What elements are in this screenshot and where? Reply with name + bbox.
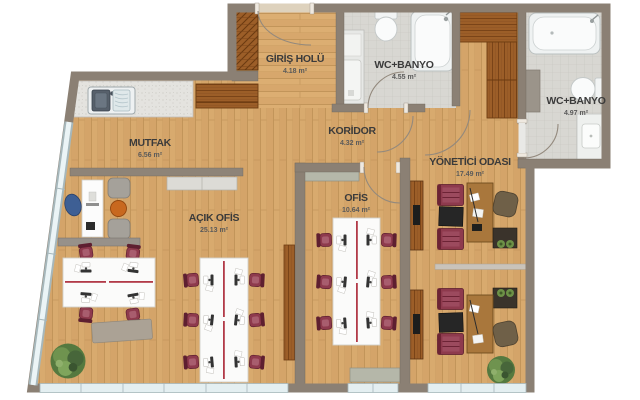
coffee-table <box>439 207 464 227</box>
bathtub <box>529 13 600 54</box>
floor-plan-drawing: MUTFAK 6.56 m² GİRİŞ HOLÜ 4.18 m² WC+BAN… <box>0 0 640 400</box>
svg-text:4.18 m²: 4.18 m² <box>283 68 308 75</box>
svg-text:GİRİŞ HOLÜ: GİRİŞ HOLÜ <box>266 52 324 65</box>
svg-text:17.49 m²: 17.49 m² <box>456 171 485 178</box>
desk-cluster-b <box>183 258 265 382</box>
ofis-cabinet-bottom <box>350 368 400 382</box>
coffee-table <box>439 313 464 333</box>
plant-stand <box>493 288 517 308</box>
armchair <box>438 229 464 250</box>
room-label-ofis: OFİS 10.64 m² <box>342 191 371 214</box>
entrance-opening <box>258 4 311 13</box>
svg-text:WC+BANYO: WC+BANYO <box>546 95 605 107</box>
ofis-door-opening <box>364 164 396 171</box>
svg-text:YÖNETİCİ ODASI: YÖNETİCİ ODASI <box>429 155 511 168</box>
armchair <box>438 289 464 310</box>
manager-desk <box>467 183 493 242</box>
glass-partition <box>435 264 530 270</box>
floor-plan-canvas: MUTFAK 6.56 m² GİRİŞ HOLÜ 4.18 m² WC+BAN… <box>0 0 640 400</box>
svg-text:OFİS: OFİS <box>344 191 368 204</box>
svg-text:AÇIK OFİS: AÇIK OFİS <box>189 211 240 224</box>
guest-chair <box>108 178 130 198</box>
armchair <box>438 334 464 355</box>
vanity-cabinet <box>524 70 540 112</box>
manager-desk <box>467 295 493 353</box>
svg-text:KORİDOR: KORİDOR <box>328 124 376 137</box>
entry-tall-cabinet <box>236 12 258 70</box>
svg-text:4.97 m²: 4.97 m² <box>564 110 589 117</box>
guest-chair <box>108 219 130 239</box>
armchair <box>438 185 464 206</box>
toilet <box>375 10 397 41</box>
partition-cabinets <box>167 177 237 190</box>
plant <box>487 356 515 384</box>
kitchen-counter <box>74 81 193 117</box>
sink-counter <box>577 114 605 160</box>
entry-low-cabinet <box>196 84 258 108</box>
svg-text:WC+BANYO: WC+BANYO <box>374 59 433 71</box>
svg-text:4.55 m²: 4.55 m² <box>392 74 417 81</box>
rug <box>91 319 152 343</box>
side-table <box>111 201 127 217</box>
svg-text:25.13 m²: 25.13 m² <box>200 227 229 234</box>
open-office-tall-cabinet <box>284 245 295 360</box>
svg-text:4.32 m²: 4.32 m² <box>340 140 365 147</box>
plant <box>51 344 86 379</box>
svg-text:MUTFAK: MUTFAK <box>129 137 172 149</box>
svg-text:6.56 m²: 6.56 m² <box>138 152 163 159</box>
svg-text:10.64 m²: 10.64 m² <box>342 207 371 214</box>
wc2-door-opening <box>519 123 526 153</box>
kitchen-partition <box>70 168 243 176</box>
plant-stand <box>493 228 517 248</box>
window-strip-bottom[interactable] <box>40 384 526 393</box>
